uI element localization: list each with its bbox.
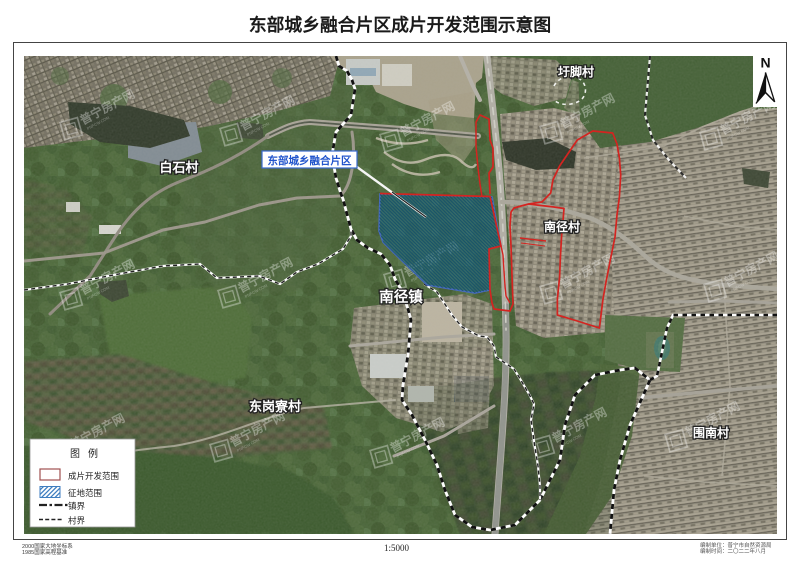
- svg-text:南径镇: 南径镇: [379, 288, 423, 306]
- svg-text:东部城乡融合片区: 东部城乡融合片区: [268, 154, 352, 167]
- svg-text:白石村: 白石村: [159, 160, 198, 175]
- svg-text:镇界: 镇界: [68, 501, 86, 511]
- svg-text:东岗寮村: 东岗寮村: [249, 399, 301, 414]
- svg-text:成片开发范围: 成片开发范围: [68, 471, 119, 481]
- svg-text:圩脚村: 圩脚村: [558, 64, 594, 79]
- svg-text:图例: 图例: [70, 447, 106, 460]
- svg-text:围南村: 围南村: [693, 425, 729, 440]
- svg-text:N: N: [760, 56, 770, 71]
- svg-text:征地范围: 征地范围: [68, 488, 102, 498]
- svg-text:村界: 村界: [68, 516, 86, 526]
- svg-text:南径村: 南径村: [544, 219, 580, 234]
